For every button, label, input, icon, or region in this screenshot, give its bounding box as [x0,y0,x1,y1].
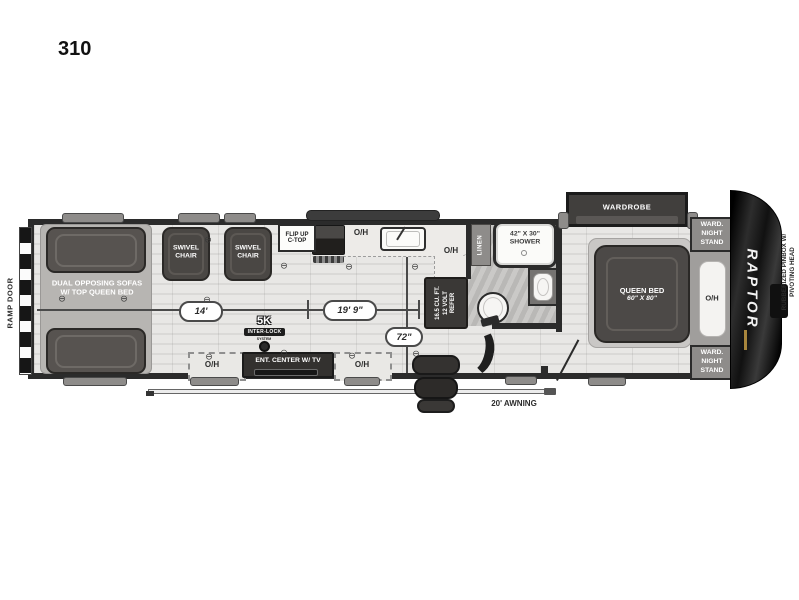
anchor-icon: ⊖ [280,261,288,272]
swivel-chair-2-label: SWIVELCHAIR [235,245,261,262]
anchor-icon: ⊖ [348,351,356,362]
anchor-icon: ⊖ [204,235,212,246]
roof-vent-2 [178,213,220,223]
anchor-icon: ⊖ [280,348,288,359]
sofa-bottom-cushion [55,335,137,368]
pinbox-label: RUBBERIZED PINBOX W/PIVOTING HEAD [781,234,797,311]
anchor-icon: ⊖ [205,352,213,363]
queen-bed-label: QUEEN BED 60" X 80" [620,286,665,304]
shower-label: 42" X 30"SHOWER [510,231,541,248]
nightstand-bottom-label: WARD.NIGHTSTAND [701,349,724,375]
wardrobe-label: WARDROBE [603,202,652,211]
kitchen-sink-bowl [386,231,420,247]
swivel-chair-1-label: SWIVELCHAIR [173,245,199,262]
raptor-gold-accent [744,330,747,350]
dimension-pill-garage: 14' [179,301,223,322]
wardrobe-flange-left [558,212,569,229]
bottom-vent-3 [344,377,380,386]
bottom-vent-5 [588,377,626,386]
bottom-vent-1 [63,377,127,386]
bottom-vent-2 [190,377,239,386]
interlock-badge-5k: 5K [257,315,271,329]
flip-up-ctop-label2: C-TOP [288,238,307,244]
slide-topper-bar [306,210,440,221]
anchor-icon: ⊖ [411,262,419,273]
ramp-door-label: RAMP DOOR [5,277,14,328]
linen-label: LINEN [477,235,485,256]
entry-steps-top [412,355,460,375]
interlock-badge-banner-text: INTER-LOCK [248,329,282,335]
anchor-icon: ⊖ [120,294,128,305]
awning-bar [148,389,552,394]
refrigerator-label: 16.5 CU. FT. 12 VOLT REFER [435,286,458,320]
dimension-pill-living: 19' 9" [323,300,377,321]
floorplan-canvas: 310 DUAL OPPOSING SOFASW/ TOP QUEEN BED … [0,0,799,600]
oh-label-kitchen-top: O/H [354,228,368,238]
kitchen-counter-return [434,256,468,279]
awning-label: 20' AWNING [491,399,537,409]
raptor-brand-logo: RAPTOR [744,248,761,329]
sofa-top-cushion [55,234,137,267]
entry-steps-bottom [417,399,455,413]
awning-end-left [146,391,154,396]
aisle-dimension-line [406,257,408,373]
bathroom-bottom-wall [492,323,556,329]
bedroom-door-jamb [541,366,548,377]
measuring-tick-garage [307,300,309,319]
page-title: 310 [58,38,91,61]
anchor-icon: ⊖ [58,294,66,305]
entertainment-center-label: ENT. CENTER W/ TV [255,357,320,365]
roof-vent-3 [224,213,256,223]
interlock-badge-dot [259,341,270,352]
oh-label-kitchen-right: O/H [444,246,458,256]
anchor-icon: ⊖ [345,262,353,273]
nightstand-top-label: WARD.NIGHTSTAND [701,221,724,247]
entry-steps-middle [414,377,458,399]
wardrobe-slide-inner [576,216,678,224]
flip-up-ctop: FLIP UP C-TOP [278,224,316,252]
oh-label-bedroom: O/H [705,293,718,302]
bathroom-sink-bowl [537,278,549,296]
oh-label-bottom-right: O/H [355,360,369,370]
tv-icon [254,369,318,376]
stove-grate [313,256,344,263]
roof-vent-1 [62,213,124,223]
interlock-badge-banner: INTER-LOCK [244,328,285,336]
measuring-tick-living [418,300,420,319]
dimension-pill-aisle: 72" [385,327,423,347]
bottom-vent-4 [505,376,537,385]
awning-end-right [544,388,556,395]
stove [312,225,345,255]
ramp-door [19,227,32,375]
shower-drain-icon [521,250,527,256]
